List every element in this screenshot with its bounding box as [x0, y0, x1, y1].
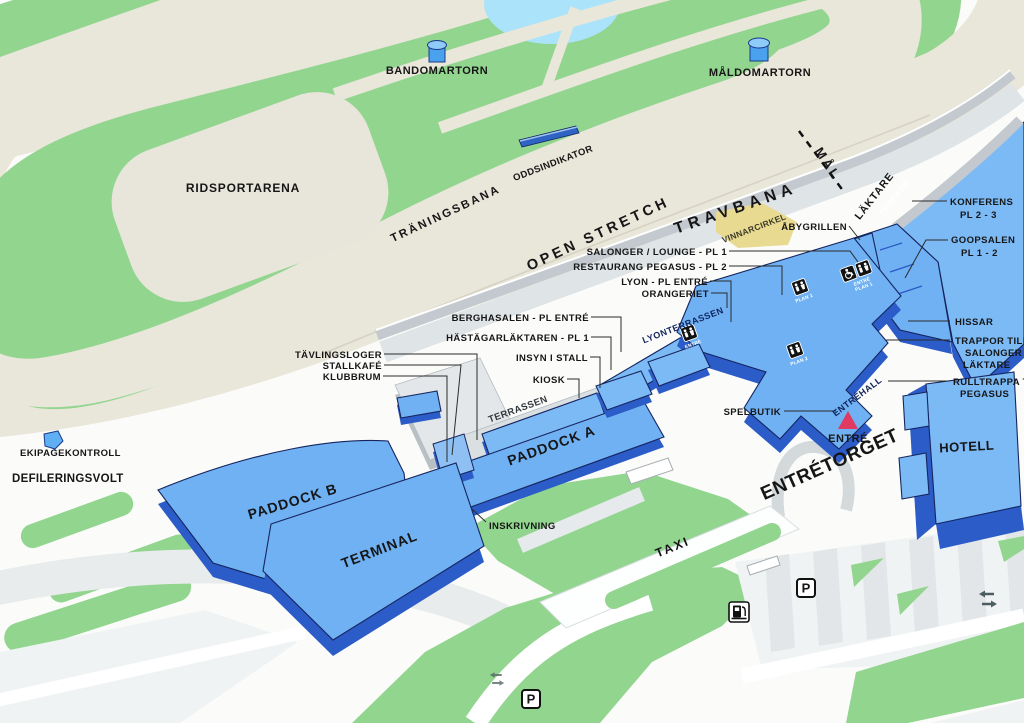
hastagarlaktaren-label: HÄSTÄGARLÄKTAREN - PL 1	[446, 333, 589, 344]
abygrillen-label: ÅBYGRILLEN	[781, 222, 847, 233]
goopsalen-label: GOOPSALEN	[951, 235, 1015, 246]
fuel-station-icon	[729, 602, 749, 622]
spelbutik-label: SPELBUTIK	[724, 407, 781, 418]
orangeriet-label: ORANGERIET	[642, 289, 709, 300]
rulltrappa-label-1: RULLTRAPPA TILL	[953, 377, 1024, 388]
goopsalen-floors-label: PL 1 - 2	[961, 248, 998, 259]
bandomartorn-label: BANDOMARTORN	[386, 65, 488, 77]
hotell-label: HOTELL	[939, 438, 995, 456]
defileringsvolt-label: DEFILERINGSVOLT	[12, 473, 124, 485]
restaurang-pegasus-label: RESTAURANG PEGASUS - PL 2	[573, 262, 727, 273]
parking-sign-icon: P	[522, 690, 540, 708]
inskrivning-label: INSKRIVNING	[489, 521, 556, 532]
parking-sign-icon: P	[797, 579, 815, 597]
svg-text:P: P	[527, 692, 536, 707]
map-canvas: PLAN 1 ENTRÉ PLAN 1 PLAN 2 ENTRÉ P P	[0, 0, 1024, 723]
bandomartorn-tower-icon	[428, 41, 447, 63]
maldomartorn-tower-icon	[749, 38, 770, 61]
venue-map: PLAN 1 ENTRÉ PLAN 1 PLAN 2 ENTRÉ P P	[0, 0, 1024, 723]
trappor-label-2: SALONGER	[965, 348, 1022, 359]
lyon-label: LYON - PL ENTRÉ	[621, 277, 708, 288]
konferens-floors-label: PL 2 - 3	[960, 210, 997, 221]
trappor-label-3: LÄKTARE	[963, 360, 1010, 371]
maldomartorn-label: MÅLDOMARTORN	[709, 66, 811, 79]
klubbrum-label: KLUBBRUM	[323, 372, 381, 383]
tavlingsloger-label: TÄVLINGSLOGER	[295, 350, 382, 361]
trappor-label-1: TRAPPOR TILL	[955, 336, 1024, 347]
konferens-label: KONFERENS	[950, 197, 1013, 208]
insyn-i-stall-label: INSYN I STALL	[516, 353, 588, 364]
berghasalen-label: BERGHASALEN - PL ENTRÉ	[452, 313, 589, 324]
salonger-lounge-label: SALONGER / LOUNGE - PL 1	[587, 247, 728, 258]
stallkafe-label: STALLKAFÉ	[323, 361, 382, 372]
kiosk-label: KIOSK	[533, 375, 565, 386]
hissar-label: HISSAR	[955, 317, 993, 328]
rulltrappa-label-2: PEGASUS	[960, 389, 1009, 400]
svg-text:P: P	[802, 581, 811, 596]
ridsportarena-label: RIDSPORTARENA	[186, 181, 300, 195]
ekipagekontroll-label: EKIPAGEKONTROLL	[20, 448, 121, 459]
